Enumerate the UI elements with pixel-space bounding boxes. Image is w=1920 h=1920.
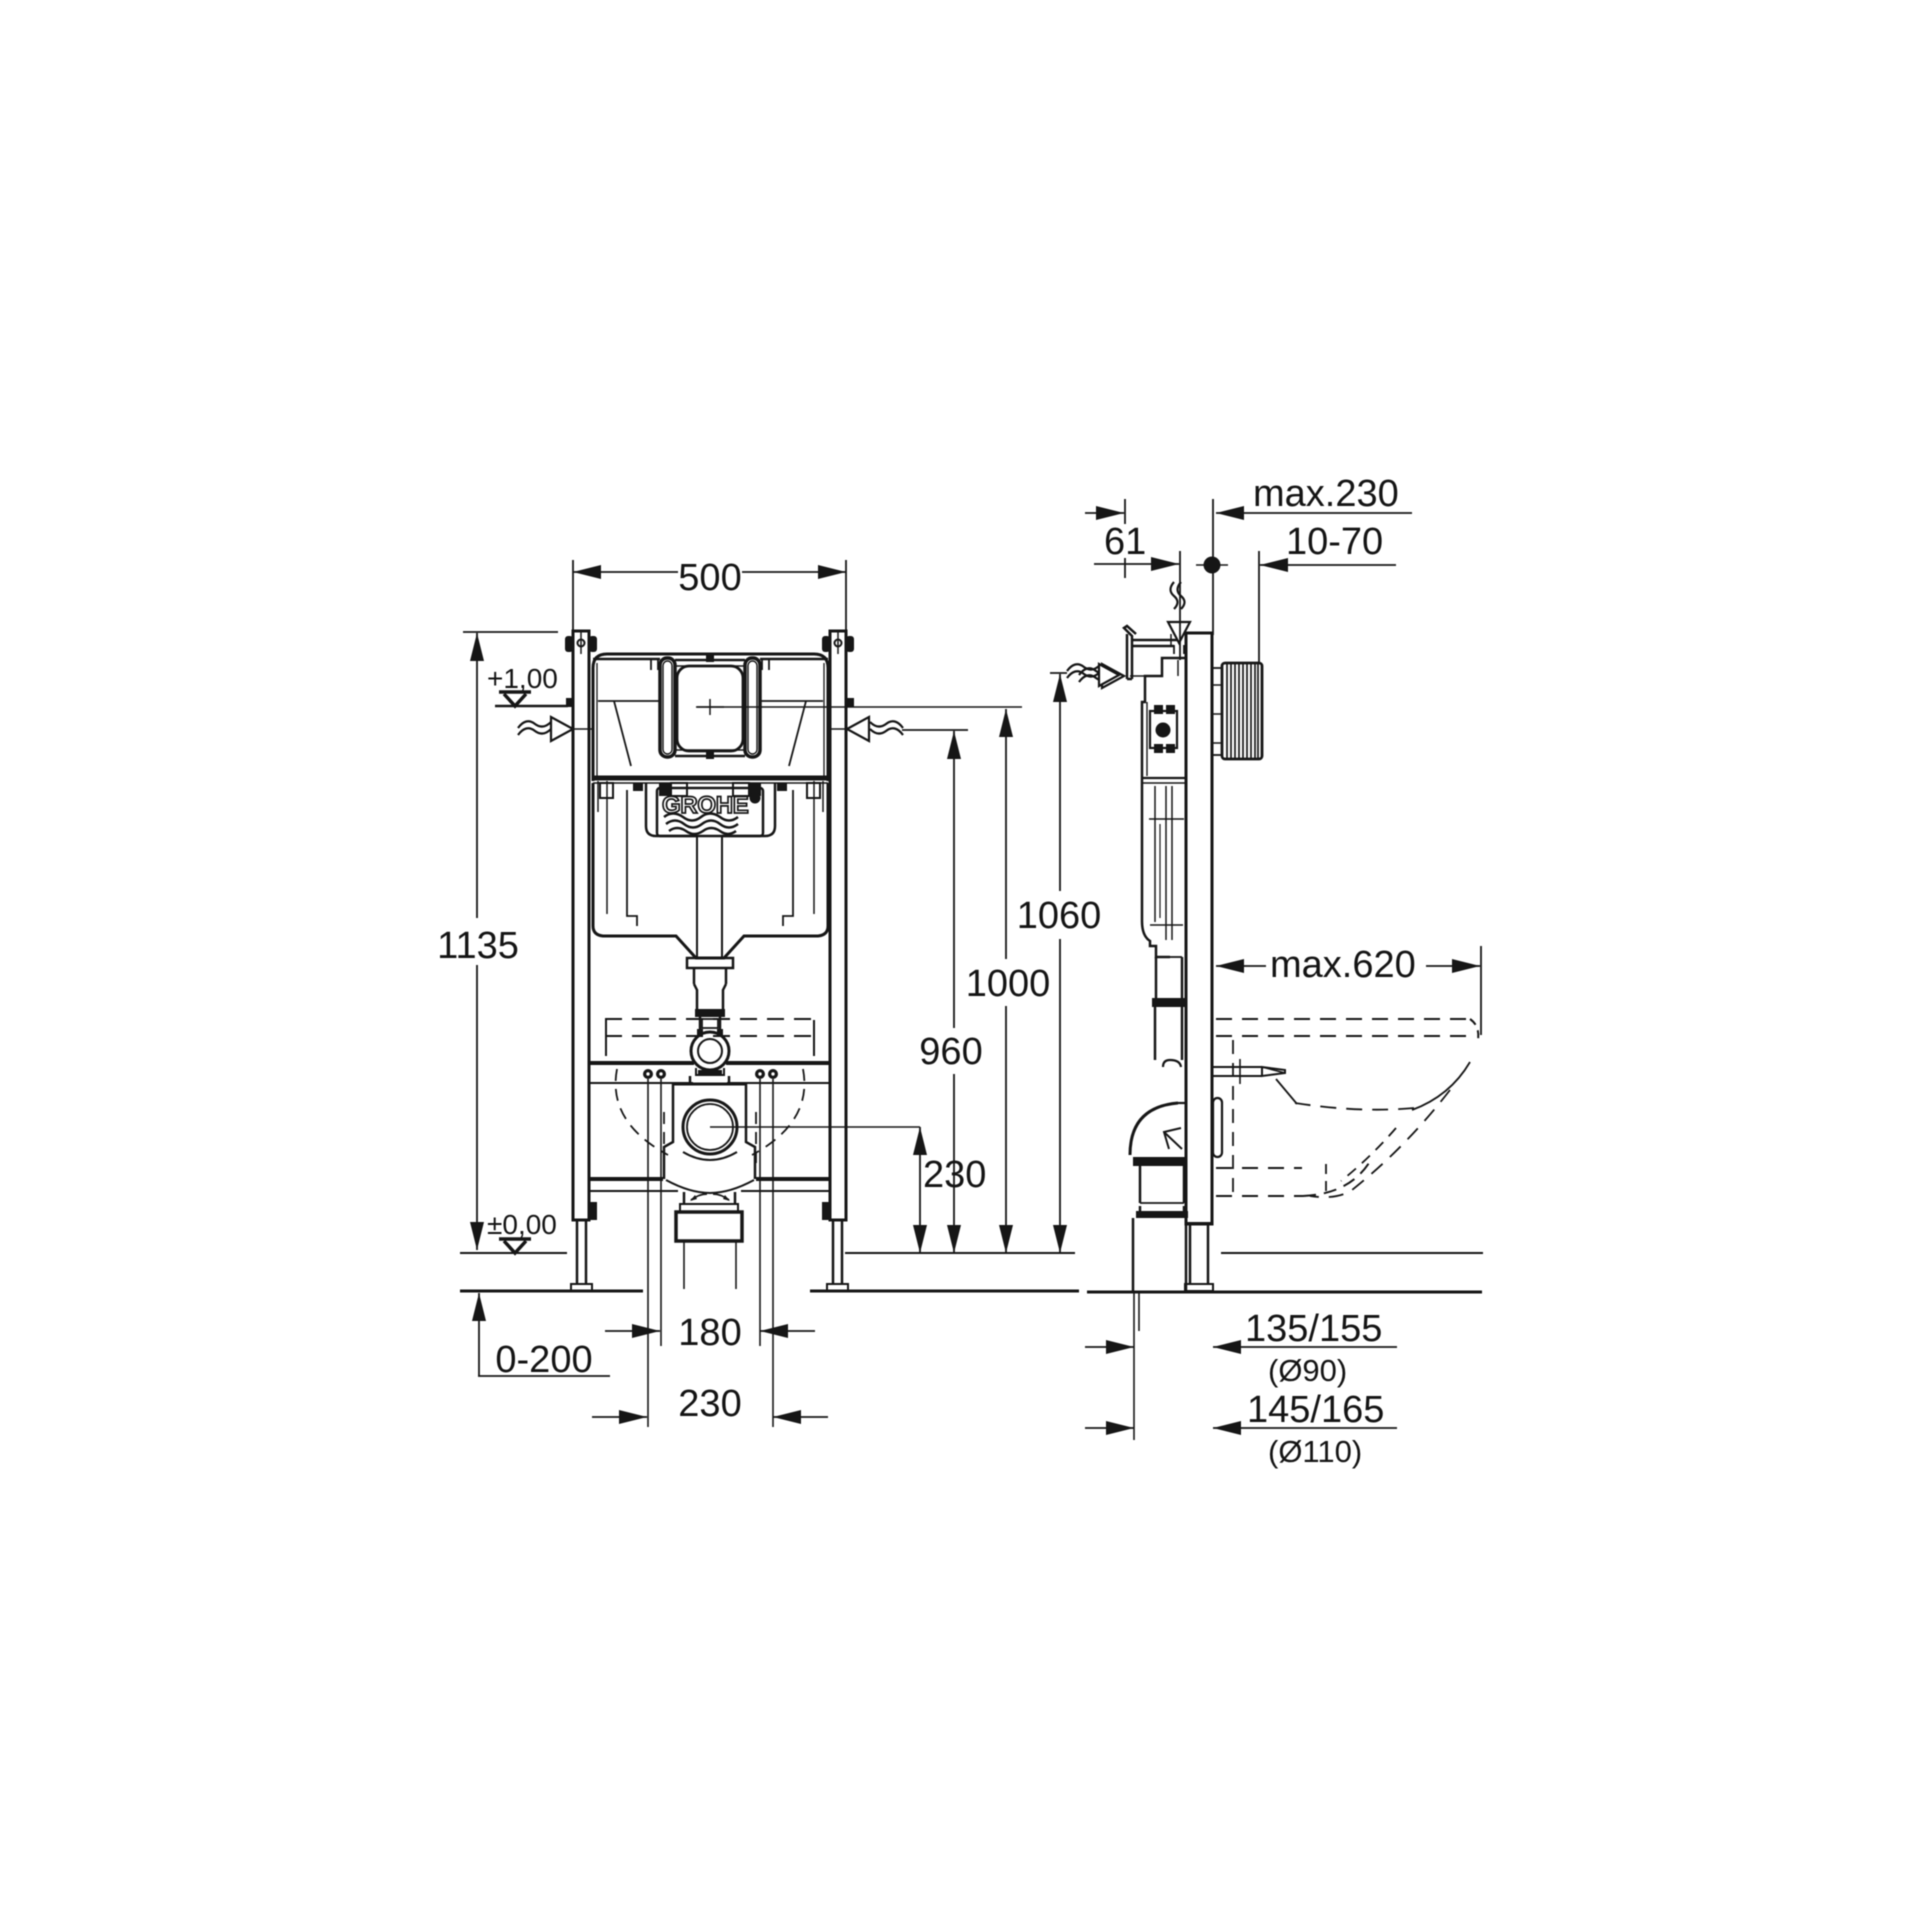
svg-text:960: 960 — [919, 1031, 982, 1073]
svg-text:max.620: max.620 — [1270, 944, 1416, 986]
svg-text:145/165: 145/165 — [1247, 1389, 1384, 1431]
svg-text:61: 61 — [1104, 521, 1146, 563]
svg-text:1000: 1000 — [966, 963, 1051, 1005]
svg-text:1060: 1060 — [1017, 895, 1102, 937]
svg-text:10-70: 10-70 — [1286, 521, 1383, 563]
svg-text:230: 230 — [923, 1154, 986, 1196]
svg-text:max.230: max.230 — [1253, 473, 1399, 515]
svg-text:180: 180 — [678, 1312, 741, 1354]
svg-text:1135: 1135 — [437, 925, 519, 967]
svg-text:135/155: 135/155 — [1245, 1308, 1382, 1350]
svg-text:±0,00: ±0,00 — [487, 1209, 557, 1240]
svg-text:0-200: 0-200 — [495, 1339, 592, 1381]
svg-text:230: 230 — [678, 1383, 741, 1425]
svg-text:500: 500 — [678, 557, 741, 599]
svg-text:+1,00: +1,00 — [487, 663, 558, 694]
svg-text:(Ø110): (Ø110) — [1268, 1434, 1362, 1469]
svg-text:(Ø90): (Ø90) — [1268, 1353, 1347, 1388]
